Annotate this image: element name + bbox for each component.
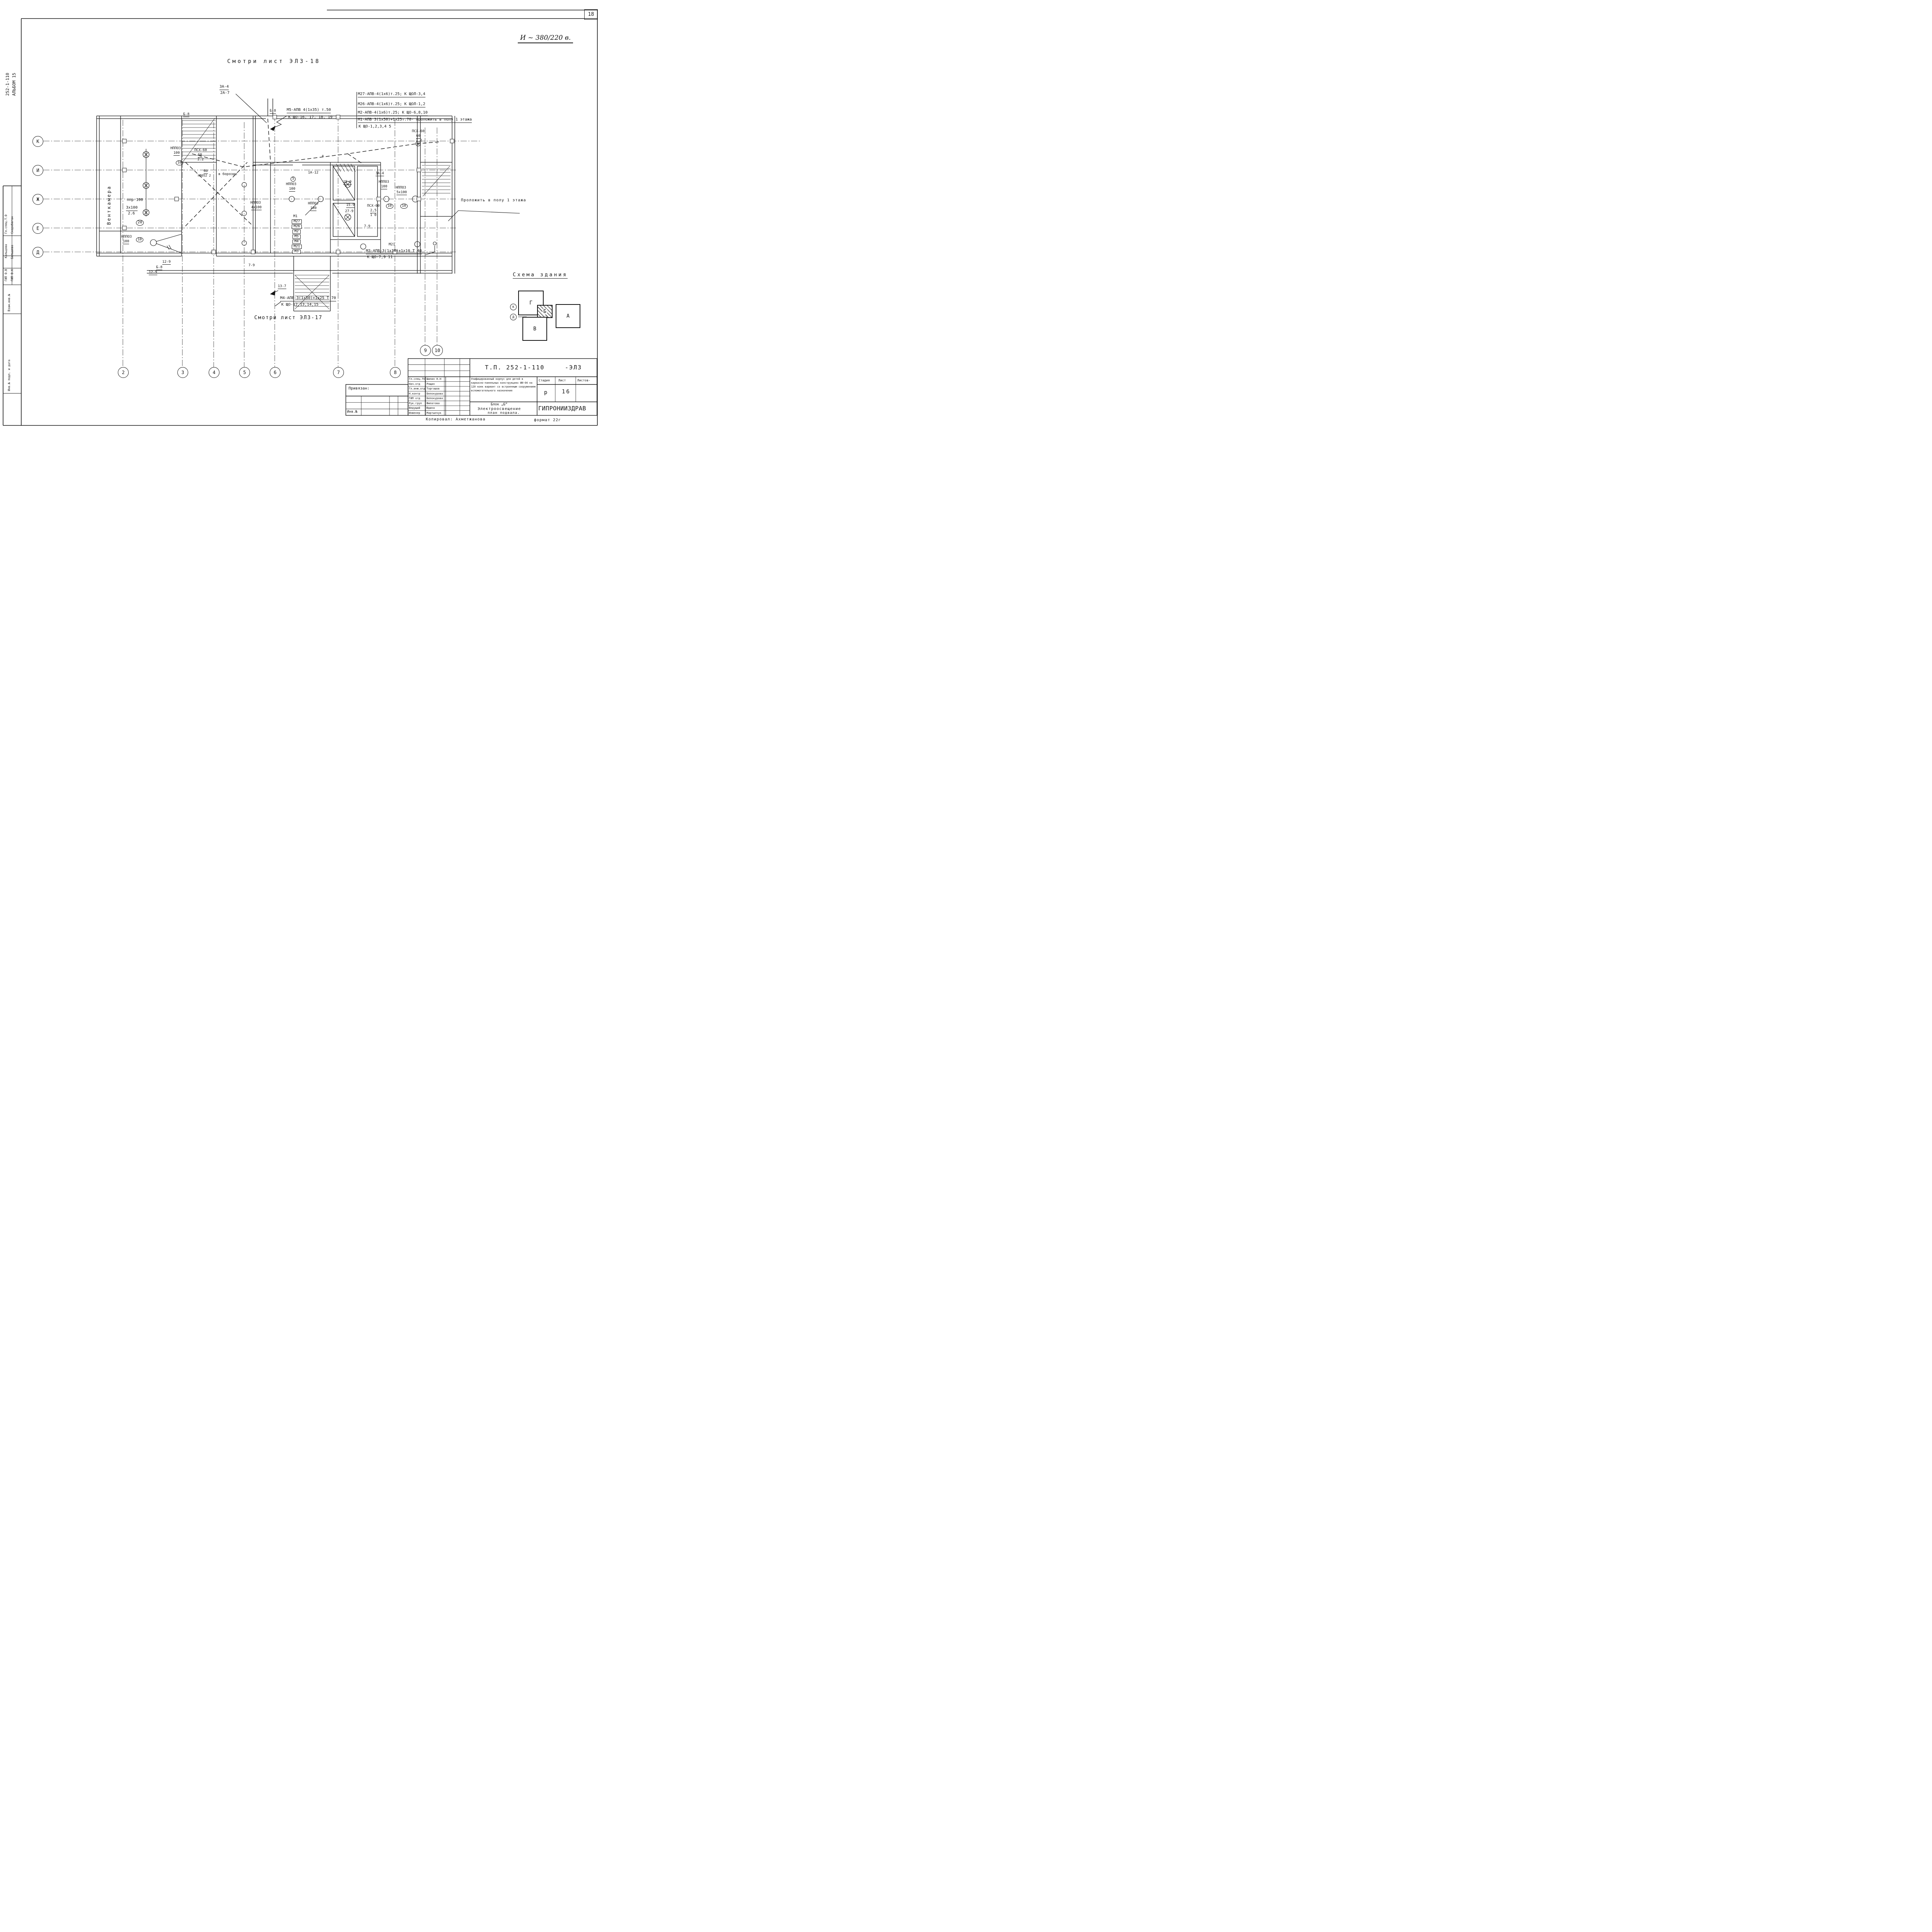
plan-label-51: 27-9 [345, 210, 354, 213]
plan-label-60: 10 [386, 204, 393, 209]
plan-label-3: 2А-7 [220, 91, 230, 95]
axis-bubble-Д: Д [32, 247, 43, 258]
axis-bubble-4: 4 [209, 367, 219, 378]
left-stamp-row-4: ГИП О.В [5, 269, 8, 281]
plan-label-28: 100 [289, 187, 295, 192]
plan-label-8: М27-АПВ-4(1х6)т.25; К ЩОЛ-3,4 [358, 92, 425, 97]
plan-label-49: 15-9 [343, 180, 352, 185]
signature-name: Рощин [426, 382, 446, 387]
signature-scribble [446, 396, 470, 401]
axis-bubble-К: К [32, 136, 43, 147]
signature-role: Инженер [408, 411, 426, 416]
signature-scribble [446, 406, 470, 411]
signature-scribble [446, 377, 470, 382]
signature-name: Шилин Н.Н [426, 377, 446, 382]
plan-label-72: М4-АПВ-3(1х50)+1х25 Т 70 [280, 296, 336, 301]
plan-label-19: ПСХ-60 [194, 149, 207, 152]
plan-label-14: 60 [416, 134, 420, 139]
plan-label-46: М4 [293, 240, 301, 244]
organization-name: ГИПРОНИИЗДРАВ [538, 405, 586, 412]
stage-label: Стадия [539, 379, 550, 382]
album-title: АЛЬБОМ 15 [12, 73, 17, 96]
voltage-note: И ~ 380/220 в. [518, 34, 573, 43]
axis-bubble-2: 2 [118, 367, 129, 378]
plan-label-11: М1-АПВ 3(1х50)+1х25т.70- проложить в пол… [358, 118, 472, 123]
note-floor1: Проложить в полу 1 этажа [461, 199, 526, 203]
axis-bubble-7: 7 [333, 367, 344, 378]
plan-label-31: 3х100 [126, 206, 138, 211]
plan-label-36: 10 [136, 237, 143, 242]
inv-number-label: Инв.№ [347, 410, 357, 414]
signature-role: ГИП отд [408, 396, 426, 401]
schema-block-v: В [522, 317, 547, 341]
signature-row-1: Нач.отдРощин [408, 382, 470, 387]
plan-label-52: ПСХ-60 [367, 204, 380, 208]
plan-label-22: 10 [176, 160, 183, 165]
plan-label-74: 7-9 [248, 264, 255, 267]
plan-label-24: НВ052 2 [198, 174, 211, 177]
axis-bubble-И: И [32, 165, 43, 176]
plan-label-32: 2.6 [128, 212, 135, 216]
axis-bubble-10: 10 [432, 345, 443, 356]
ventkamera: Венткамера [107, 185, 112, 225]
plan-label-54: 1 0 [370, 214, 376, 217]
plan-label-70: 12-9 [149, 271, 157, 275]
plan-label-17: НППОЗ [170, 147, 181, 150]
plan-label-64: 8 [322, 155, 324, 158]
signature-row-6: ВедущийЮдина [408, 406, 470, 411]
doc-number: Т.П. 252-1-110 [485, 364, 544, 371]
plan-label-37: НППОЗ [250, 201, 261, 205]
album-number: 252-1-110 [5, 73, 10, 96]
plan-label-39: НППОЗ [308, 202, 318, 206]
axis-bubble-3: 3 [177, 367, 188, 378]
signature-role: Рук.груп [408, 401, 426, 406]
left-stamp-row-3: Бельшева [11, 245, 14, 259]
plan-label-20: 60 [198, 153, 202, 158]
signature-role: Гл.спец.ТО [408, 377, 426, 382]
plan-label-63: 7-9 [364, 225, 370, 228]
plan-label-25: в борозде [218, 173, 237, 176]
signature-role: Н.контр [408, 391, 426, 396]
plan-label-59: 5х100 [396, 191, 407, 195]
left-stamp-row-6: Взам.инв.№ [8, 294, 11, 311]
axis-bubble-Ж: Ж [32, 194, 43, 205]
plan-label-5: Б-8 [270, 109, 276, 114]
plan-label-66: М3-АПВ-3(1х16)+1х10 Т 40 [366, 249, 422, 254]
signature-table: Гл.спец.ТОШилин Н.ННач.отдРощинГл.инж.от… [408, 377, 470, 415]
plan-label-12: К ЩО-1,2,3,4 5 [359, 125, 391, 129]
sheets-label: Листов- [577, 379, 590, 382]
plan-label-69: Б-8 [156, 266, 162, 270]
plan-label-67: К ЩО-7,9 11 [367, 255, 393, 260]
signature-name: Торгашов [426, 386, 446, 391]
plan-label-30: ппр-100 [127, 198, 143, 202]
sheet-value: 16 [562, 389, 571, 395]
plan-label-34: НППОЗ [121, 235, 132, 239]
plan-label-18: 100 [173, 151, 180, 156]
plan-label-45: М5 [293, 235, 301, 239]
axis-bubble-8: 8 [390, 367, 401, 378]
format-note: формат 22г [534, 418, 561, 422]
doc-suffix: -ЭЛ3 [565, 364, 582, 371]
stage-value: р [544, 389, 547, 396]
see-sheet-18: Смотри лист ЭЛ3-18 [227, 59, 321, 65]
plan-label-50: 15-9 [346, 204, 355, 208]
copied-by: Копировал: Ахметжанова [426, 417, 485, 422]
sheet-label: Лист [558, 379, 566, 382]
signature-role: Нач.отд [408, 382, 426, 387]
signature-name: Юдина [426, 406, 446, 411]
plan-label-47: М21 [292, 245, 302, 249]
plan-label-73: К ЩО-12,13,14,15 [281, 303, 318, 307]
plan-label-56: НППОЗ [379, 180, 389, 184]
plan-label-26: 5 [291, 177, 296, 182]
plan-label-4: Б-8 [183, 113, 189, 117]
schema-block-b: Б [537, 305, 553, 318]
schema-axis-d: Д [510, 314, 517, 320]
block-title-2: Электроосвещение [478, 407, 521, 411]
plan-label-35: 100 [123, 240, 129, 244]
signature-scribble [446, 401, 470, 406]
left-stamp-row-1: Скоробеган [11, 216, 14, 234]
signature-name: Белокурова [426, 396, 446, 401]
plan-label-40: 100 [310, 207, 316, 211]
plan-label-29: 1А-12 [308, 171, 318, 175]
linked-label: Привязан: [349, 386, 369, 391]
project-description: Унифицированный корпус для детей в карка… [471, 378, 537, 401]
plan-label-15: 2 2 [416, 139, 422, 143]
plan-label-48: М3 [293, 250, 301, 254]
plan-label-41: М1 [293, 215, 298, 218]
signature-role: Гл.инж.отд [408, 386, 426, 391]
signature-row-7: ИнженерМартынчук [408, 411, 470, 416]
plan-label-9: М26-АПВ-4(1х6)т.25; К ЩОЛ-1,2 [358, 102, 425, 107]
plan-label-71: 13-7 [278, 285, 286, 289]
left-stamp-row-5: ГИП В.К [11, 269, 14, 281]
signature-name: Филатова [426, 401, 446, 406]
block-title-3: план подвала. [488, 411, 520, 415]
plan-label-43: М26 [292, 224, 302, 229]
building-schema-title: Схема здания [513, 272, 568, 279]
plan-label-44: М2 [293, 230, 301, 234]
plan-label-57: 100 [381, 185, 387, 189]
left-stamp-row-0: Гл.спец.Т.О [5, 214, 8, 234]
plan-label-7: К ЩО-16, 17, 18, 19 [288, 116, 332, 120]
schema-block-a: А [556, 304, 580, 328]
axis-bubble-Е: Е [32, 223, 43, 234]
plan-label-61: 10 [400, 204, 408, 209]
signature-row-4: ГИП отдБелокурова [408, 396, 470, 401]
plan-label-58: НППОЗ [396, 186, 406, 190]
axis-bubble-9: 9 [420, 345, 431, 356]
plan-label-21: 2.2 [197, 158, 204, 162]
signature-name: Белокурова [426, 391, 446, 396]
plan-label-68: 12-9 [162, 260, 171, 265]
signature-role: Ведущий [408, 406, 426, 411]
plan-label-38: 4х100 [251, 206, 262, 210]
signature-row-3: Н.контрБелокурова [408, 391, 470, 396]
axis-bubble-6: 6 [270, 367, 281, 378]
signature-row-0: Гл.спец.ТОШилин Н.Н [408, 377, 470, 382]
signature-scribble [446, 391, 470, 396]
signature-scribble [446, 386, 470, 391]
blueprint-sheet: 18 И ~ 380/220 в. 252-1-110 АЛЬБОМ 15 Сх… [0, 0, 606, 429]
schema-axis-k: К [510, 304, 517, 310]
plan-label-2: 3А-4 [219, 85, 229, 90]
plan-label-27: НППОЗ [286, 183, 296, 186]
plan-label-33: 20 [136, 220, 144, 226]
plan-label-13: ПСХ-60 [412, 130, 425, 133]
signature-name: Мартынчук [426, 411, 446, 416]
plan-label-10: М2-АПВ-4(1х6)т.25; К ЩО-6,8,10 [358, 111, 428, 116]
left-stamp-row-7: Инв.№ подл. и дата [8, 360, 11, 391]
signature-scribble [446, 411, 470, 416]
plan-label-23: 60 [204, 170, 208, 174]
signature-row-5: Рук.групФилатова [408, 401, 470, 406]
axis-bubble-5: 5 [239, 367, 250, 378]
sheet-number-box: 18 [584, 9, 598, 20]
see-sheet-17: Смотри лист ЭЛ3-17 [254, 315, 323, 321]
plan-label-6: М5-АПВ 4(1х35) т.50 [287, 108, 331, 113]
signature-row-2: Гл.инж.отдТоргашов [408, 386, 470, 391]
plan-label-62: М21 [389, 243, 395, 247]
left-stamp-row-2: Кольцова [5, 244, 8, 258]
plan-label-53: 2,5 [370, 209, 376, 213]
signature-scribble [446, 382, 470, 387]
block-title-1: Блок „Б“ [491, 403, 507, 406]
plan-label-42: М27 [292, 219, 302, 224]
plan-label-55: 3А-4 [376, 172, 384, 176]
